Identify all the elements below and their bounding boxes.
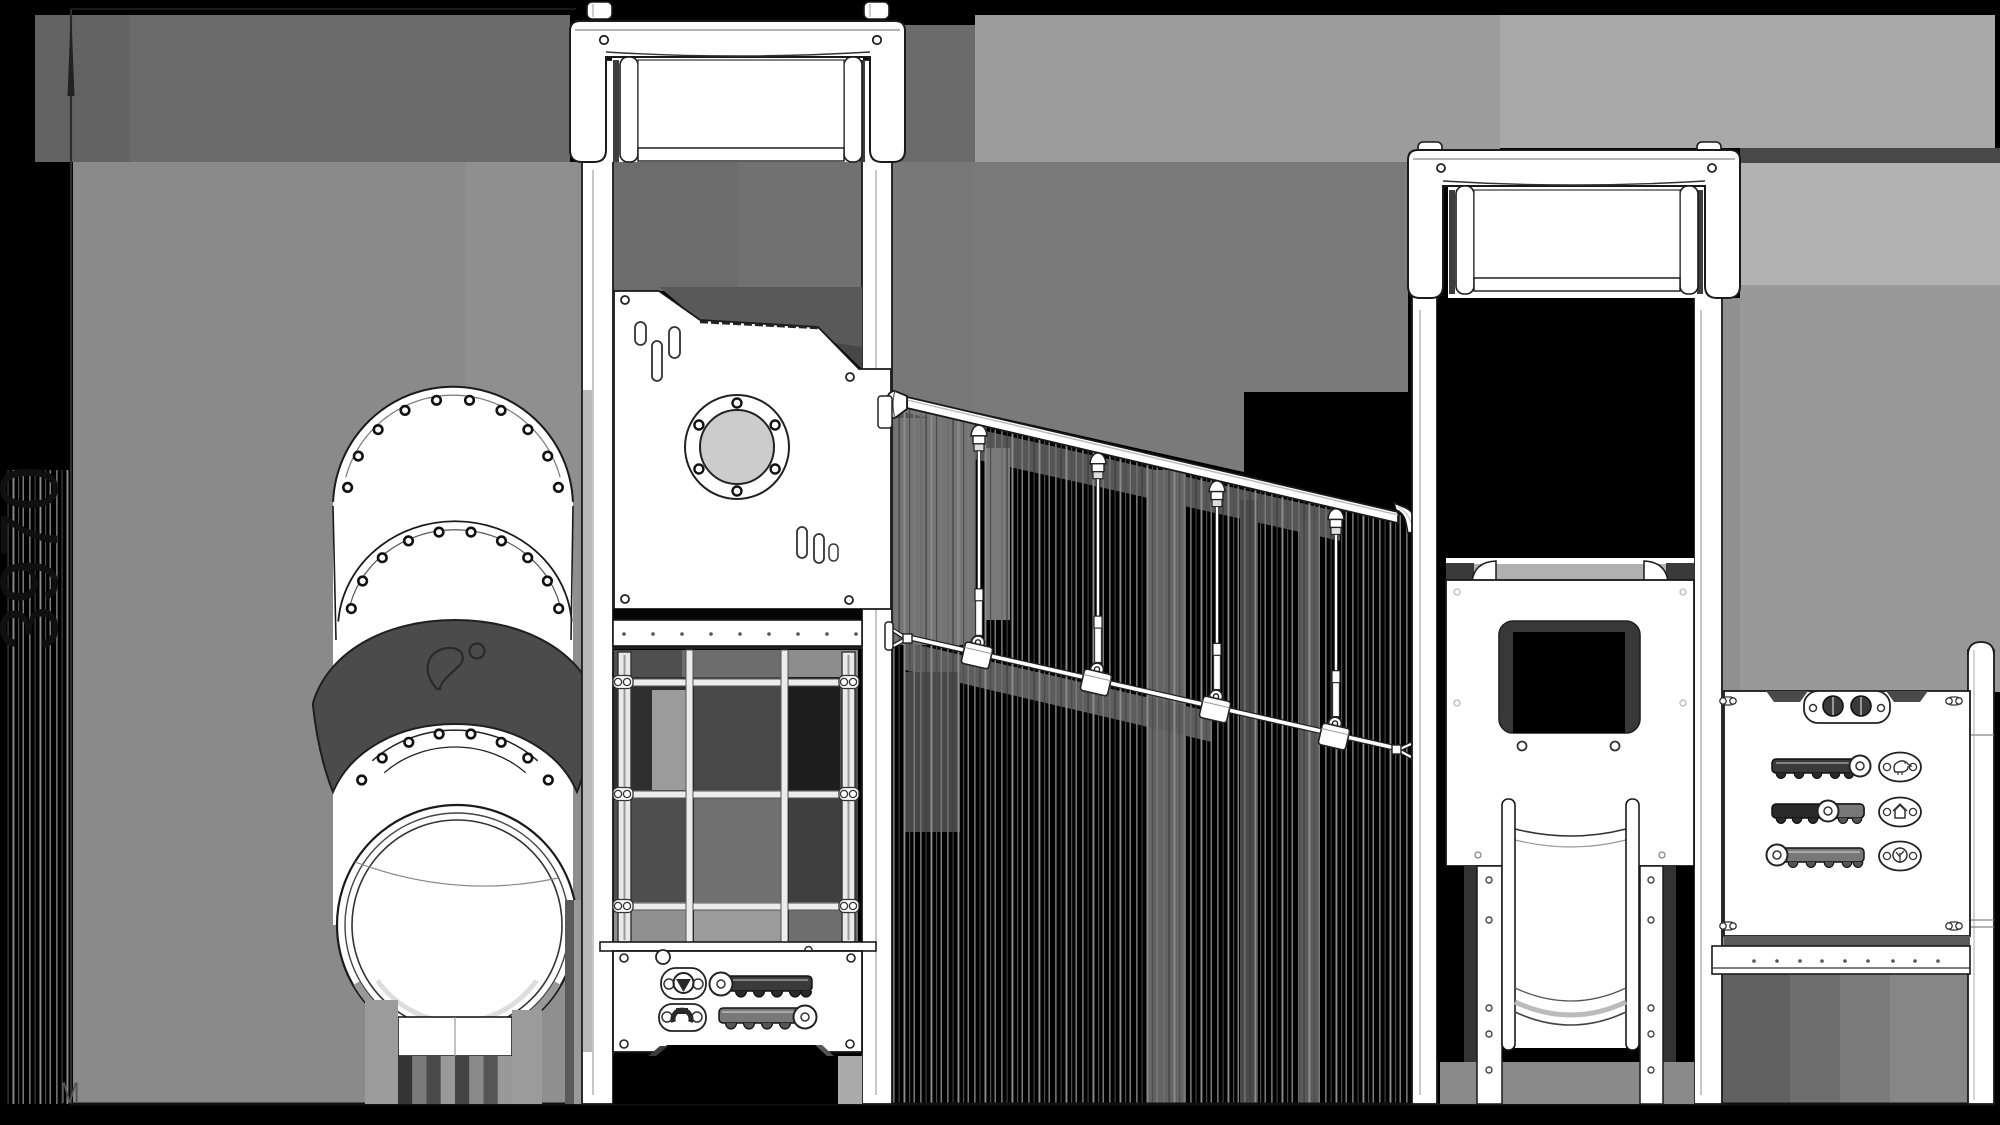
svg-text:3970: 3970 xyxy=(0,465,75,651)
svg-text:M: M xyxy=(60,1076,79,1109)
